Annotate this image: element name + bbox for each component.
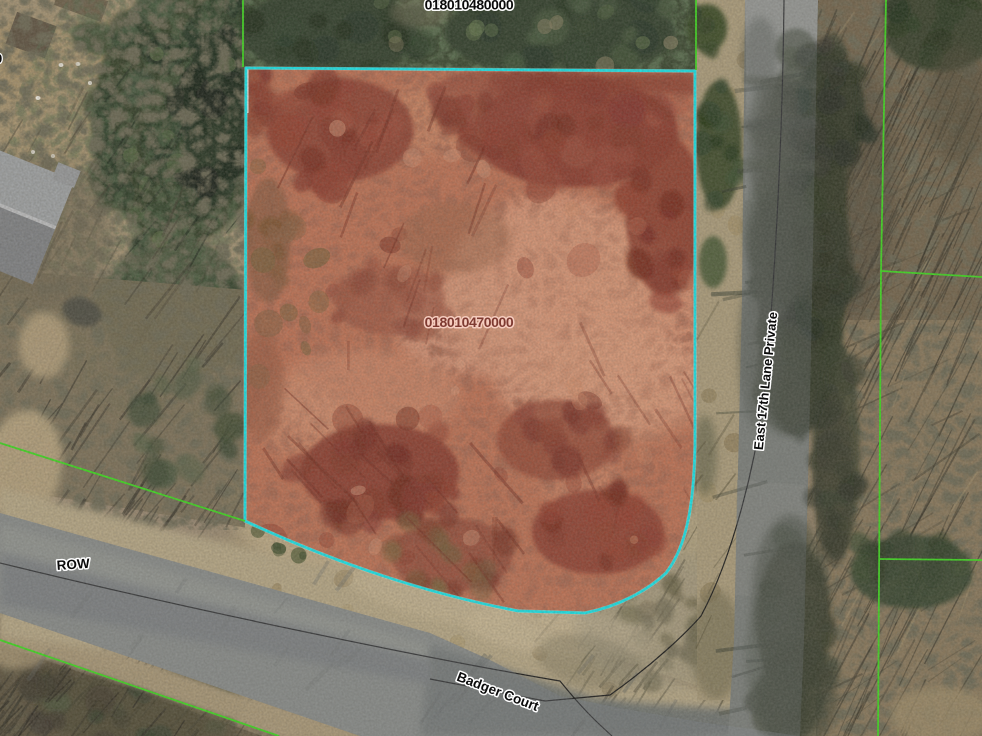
svg-text:ROW: ROW — [56, 556, 90, 573]
svg-text:018010480000: 018010480000 — [425, 0, 514, 13]
svg-text:018010470000: 018010470000 — [425, 314, 514, 330]
svg-text:0: 0 — [0, 51, 2, 66]
